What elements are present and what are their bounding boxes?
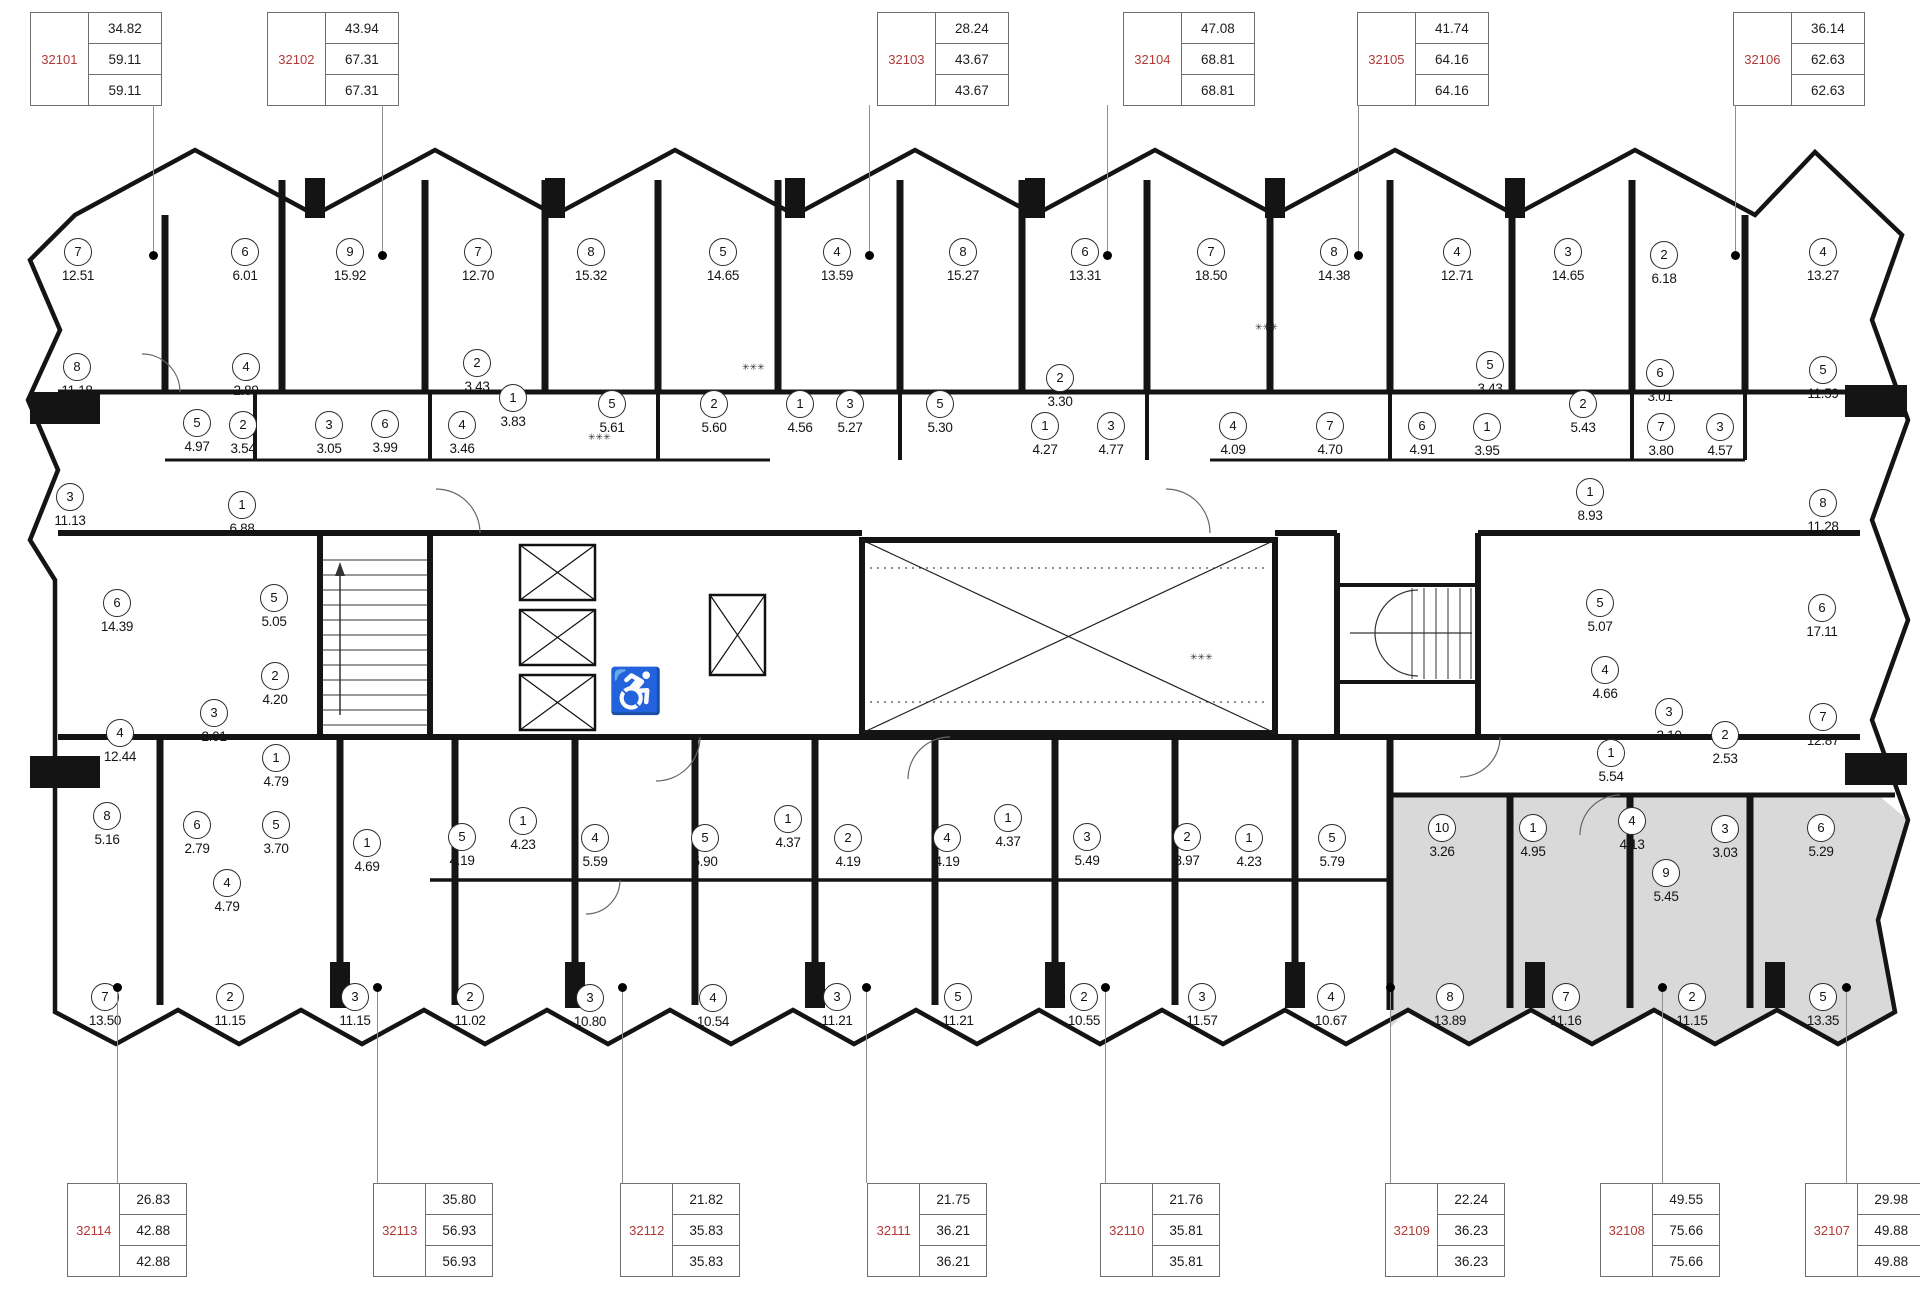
- leader-dot: [1386, 983, 1395, 992]
- unit-area-value: 21.76: [1153, 1184, 1219, 1215]
- unit-area-value: 49.55: [1653, 1184, 1719, 1215]
- unit-box: 32108 49.55 75.66 75.66: [1600, 1183, 1720, 1277]
- room-area: 4.20: [245, 692, 305, 707]
- room-area: 3.97: [1157, 853, 1217, 868]
- room-area: 4.57: [1690, 443, 1750, 458]
- room-label: 2 11.15: [1678, 983, 1706, 1028]
- room-number-circle: 5: [448, 823, 476, 851]
- leader-dot: [149, 251, 158, 260]
- room-label: 1 4.37: [994, 804, 1022, 849]
- room-label: 5 3.43: [1476, 351, 1504, 396]
- room-area: 4.09: [1203, 442, 1263, 457]
- room-label: 3 11.13: [56, 483, 84, 528]
- room-number-circle: 2: [463, 349, 491, 377]
- room-number-circle: 1: [1473, 413, 1501, 441]
- room-number-circle: 3: [823, 983, 851, 1011]
- room-number-circle: 3: [200, 699, 228, 727]
- room-number-circle: 4: [1443, 238, 1471, 266]
- room-area: 3.54: [213, 441, 273, 456]
- room-label: 3 4.57: [1706, 413, 1734, 458]
- room-label: 9 5.45: [1652, 859, 1680, 904]
- unit-box: 32105 41.74 64.16 64.16: [1357, 12, 1489, 106]
- room-area: 13.50: [75, 1013, 135, 1028]
- room-number-circle: 6: [1071, 238, 1099, 266]
- unit-area-values: 21.76 35.81 35.81: [1153, 1184, 1219, 1276]
- room-label: 3 2.01: [200, 699, 228, 744]
- room-number-circle: 6: [371, 410, 399, 438]
- room-number-circle: 2: [229, 411, 257, 439]
- room-area: 6.88: [212, 521, 272, 536]
- room-area: 5.45: [1636, 889, 1696, 904]
- room-area: 4.19: [432, 853, 492, 868]
- room-label: 6 3.99: [371, 410, 399, 455]
- unit-id: 32101: [31, 13, 89, 105]
- room-area: 12.87: [1793, 733, 1853, 748]
- unit-area-value: 67.31: [326, 75, 398, 105]
- room-area: 3.01: [1630, 389, 1690, 404]
- unit-area-value: 35.81: [1153, 1246, 1219, 1276]
- room-label: 2 3.97: [1173, 823, 1201, 868]
- room-area: 15.32: [561, 268, 621, 283]
- room-area: 4.77: [1081, 442, 1141, 457]
- room-area: 11.57: [1172, 1013, 1232, 1028]
- room-label: 8 11.28: [1809, 489, 1837, 534]
- unit-area-value: 62.63: [1792, 75, 1864, 105]
- room-label: 1 4.79: [262, 744, 290, 789]
- room-number-circle: 1: [1235, 824, 1263, 852]
- room-number-circle: 9: [336, 238, 364, 266]
- room-label: 9 15.92: [336, 238, 364, 283]
- leader-line: [869, 105, 870, 255]
- leader-dot: [1842, 983, 1851, 992]
- leader-dot: [1731, 251, 1740, 260]
- unit-area-value: 43.94: [326, 13, 398, 44]
- room-number-circle: 7: [1809, 703, 1837, 731]
- room-label: 1 4.56: [786, 390, 814, 435]
- unit-area-values: 28.24 43.67 43.67: [936, 13, 1008, 105]
- room-number-circle: 7: [1197, 238, 1225, 266]
- room-number-circle: 7: [1316, 412, 1344, 440]
- unit-area-values: 35.80 56.93 56.93: [426, 1184, 492, 1276]
- room-label: 7 18.50: [1197, 238, 1225, 283]
- unit-area-values: 29.98 49.88 49.88: [1858, 1184, 1920, 1276]
- room-label: 3 2.10: [1655, 698, 1683, 743]
- room-label: 2 5.43: [1569, 390, 1597, 435]
- room-number-circle: 3: [1554, 238, 1582, 266]
- floor-plan-sheet: ♿ ✳✳✳ ✳✳✳ ✳✳✳ ✳✳✳ 7: [0, 0, 1920, 1292]
- unit-area-value: 43.67: [936, 75, 1008, 105]
- room-number-circle: 6: [1807, 814, 1835, 842]
- unit-area-value: 36.23: [1438, 1246, 1504, 1276]
- room-label: 2 2.53: [1711, 721, 1739, 766]
- leader-line: [1107, 105, 1108, 255]
- room-label: 1 4.27: [1031, 412, 1059, 457]
- room-number-circle: 5: [183, 409, 211, 437]
- room-label: 1 4.23: [1235, 824, 1263, 869]
- room-area: 4.23: [1219, 854, 1279, 869]
- unit-area-value: 64.16: [1416, 44, 1488, 75]
- leader-dot: [378, 251, 387, 260]
- room-number-circle: 5: [1809, 356, 1837, 384]
- room-label: 5 11.59: [1809, 356, 1837, 401]
- room-number-circle: 2: [1070, 983, 1098, 1011]
- room-area: 3.43: [447, 379, 507, 394]
- unit-area-value: 62.63: [1792, 44, 1864, 75]
- room-number-circle: 3: [1706, 413, 1734, 441]
- room-label: 2 3.30: [1046, 364, 1074, 409]
- room-area: 5.79: [1302, 854, 1362, 869]
- room-number-circle: 1: [786, 390, 814, 418]
- room-number-circle: 2: [1650, 241, 1678, 269]
- room-number-circle: 4: [106, 719, 134, 747]
- room-label: 6 4.91: [1408, 412, 1436, 457]
- room-area: 3.83: [483, 414, 543, 429]
- room-label: 2 6.18: [1650, 241, 1678, 286]
- room-label: 4 5.59: [581, 824, 609, 869]
- unit-area-values: 34.82 59.11 59.11: [89, 13, 161, 105]
- room-label: 4 13.59: [823, 238, 851, 283]
- room-label: 8 5.16: [93, 802, 121, 847]
- leader-dot: [618, 983, 627, 992]
- unit-area-value: 35.83: [673, 1246, 739, 1276]
- room-area: 11.15: [325, 1013, 385, 1028]
- room-area: 11.18: [47, 383, 107, 398]
- room-label: 4 12.71: [1443, 238, 1471, 283]
- room-area: 3.30: [1030, 394, 1090, 409]
- room-label: 5 5.90: [691, 824, 719, 869]
- room-area: 4.91: [1392, 442, 1452, 457]
- room-label: 2 11.02: [456, 983, 484, 1028]
- room-number-circle: 3: [836, 390, 864, 418]
- unit-id: 32106: [1734, 13, 1792, 105]
- room-label: 2 5.60: [700, 390, 728, 435]
- room-area: 3.46: [432, 441, 492, 456]
- unit-area-value: 21.75: [920, 1184, 986, 1215]
- room-area: 11.02: [440, 1013, 500, 1028]
- room-label: 8 14.38: [1320, 238, 1348, 283]
- room-number-circle: 1: [1597, 739, 1625, 767]
- unit-area-value: 68.81: [1182, 75, 1254, 105]
- room-label: 1 3.95: [1473, 413, 1501, 458]
- leader-line: [1390, 990, 1391, 1183]
- leader-line: [1846, 990, 1847, 1183]
- room-number-circle: 2: [1046, 364, 1074, 392]
- room-number-circle: 4: [699, 984, 727, 1012]
- room-number-circle: 8: [949, 238, 977, 266]
- room-number-circle: 1: [262, 744, 290, 772]
- room-area: 6.18: [1634, 271, 1694, 286]
- room-area: 13.89: [1420, 1013, 1480, 1028]
- unit-area-value: 49.88: [1858, 1215, 1920, 1246]
- room-number-circle: 7: [1647, 413, 1675, 441]
- unit-box: 32109 22.24 36.23 36.23: [1385, 1183, 1505, 1277]
- unit-area-values: 22.24 36.23 36.23: [1438, 1184, 1504, 1276]
- room-area: 4.66: [1575, 686, 1635, 701]
- room-number-circle: 2: [834, 824, 862, 852]
- room-number-circle: 4: [933, 824, 961, 852]
- room-area: 10.67: [1301, 1013, 1361, 1028]
- room-area: 11.16: [1536, 1013, 1596, 1028]
- room-number-circle: 2: [1569, 390, 1597, 418]
- unit-id: 32114: [68, 1184, 120, 1276]
- unit-box: 32102 43.94 67.31 67.31: [267, 12, 399, 106]
- leader-line: [382, 105, 383, 255]
- room-area: 12.70: [448, 268, 508, 283]
- unit-area-value: 68.81: [1182, 44, 1254, 75]
- room-area: 12.51: [48, 268, 108, 283]
- room-number-circle: 7: [64, 238, 92, 266]
- floor-plan-svg: ♿ ✳✳✳ ✳✳✳ ✳✳✳ ✳✳✳: [0, 0, 1920, 1292]
- room-area: 11.59: [1793, 386, 1853, 401]
- leader-line: [1735, 105, 1736, 255]
- room-number-circle: 2: [456, 983, 484, 1011]
- unit-area-value: 36.23: [1438, 1215, 1504, 1246]
- room-label: 2 3.43: [463, 349, 491, 394]
- room-area: 11.21: [928, 1013, 988, 1028]
- unit-id: 32111: [868, 1184, 920, 1276]
- unit-area-value: 41.74: [1416, 13, 1488, 44]
- room-area: 5.30: [910, 420, 970, 435]
- unit-area-value: 26.83: [120, 1184, 186, 1215]
- room-number-circle: 1: [1576, 478, 1604, 506]
- room-label: 6 6.01: [231, 238, 259, 283]
- room-number-circle: 3: [576, 984, 604, 1012]
- room-label: 2 11.15: [216, 983, 244, 1028]
- room-area: 13.35: [1793, 1013, 1853, 1028]
- room-area: 3.80: [1631, 443, 1691, 458]
- unit-box: 32110 21.76 35.81 35.81: [1100, 1183, 1220, 1277]
- room-label: 3 4.77: [1097, 412, 1125, 457]
- room-number-circle: 5: [1809, 983, 1837, 1011]
- room-area: 5.54: [1581, 769, 1641, 784]
- room-label: 10 3.26: [1428, 814, 1456, 859]
- room-label: 5 5.61: [598, 390, 626, 435]
- room-label: 1 4.37: [774, 805, 802, 850]
- room-number-circle: 2: [1678, 983, 1706, 1011]
- leader-dot: [865, 251, 874, 260]
- unit-area-value: 35.83: [673, 1215, 739, 1246]
- room-label: 4 10.67: [1317, 983, 1345, 1028]
- room-label: 4 2.89: [232, 353, 260, 398]
- room-area: 4.79: [197, 899, 257, 914]
- room-label: 4 4.09: [1219, 412, 1247, 457]
- room-label: 4 12.44: [106, 719, 134, 764]
- leader-dot: [1354, 251, 1363, 260]
- leader-line: [866, 990, 867, 1183]
- room-area: 4.79: [246, 774, 306, 789]
- room-area: 11.13: [40, 513, 100, 528]
- unit-area-value: 64.16: [1416, 75, 1488, 105]
- room-number-circle: 4: [448, 411, 476, 439]
- leader-line: [1105, 990, 1106, 1183]
- room-area: 11.28: [1793, 519, 1853, 534]
- room-area: 13.27: [1793, 268, 1853, 283]
- unit-box: 32101 34.82 59.11 59.11: [30, 12, 162, 106]
- room-label: 7 12.87: [1809, 703, 1837, 748]
- room-label: 8 11.18: [63, 353, 91, 398]
- unit-area-value: 42.88: [120, 1215, 186, 1246]
- leader-line: [1358, 105, 1359, 255]
- room-number-circle: 8: [93, 802, 121, 830]
- room-area: 5.29: [1791, 844, 1851, 859]
- leader-dot: [373, 983, 382, 992]
- leader-dot: [113, 983, 122, 992]
- room-number-circle: 4: [1219, 412, 1247, 440]
- room-area: 11.15: [200, 1013, 260, 1028]
- room-label: 1 4.69: [353, 829, 381, 874]
- unit-id: 32107: [1806, 1184, 1858, 1276]
- room-area: 2.01: [184, 729, 244, 744]
- unit-area-values: 26.83 42.88 42.88: [120, 1184, 186, 1276]
- room-number-circle: 4: [823, 238, 851, 266]
- room-number-circle: 5: [926, 390, 954, 418]
- unit-box: 32113 35.80 56.93 56.93: [373, 1183, 493, 1277]
- room-number-circle: 1: [1031, 412, 1059, 440]
- room-label: 5 4.19: [448, 823, 476, 868]
- room-number-circle: 3: [1711, 815, 1739, 843]
- room-label: 6 17.11: [1808, 594, 1836, 639]
- leader-line: [622, 990, 623, 1183]
- unit-box: 32112 21.82 35.83 35.83: [620, 1183, 740, 1277]
- room-number-circle: 5: [598, 390, 626, 418]
- unit-area-value: 59.11: [89, 75, 161, 105]
- room-number-circle: 7: [1552, 983, 1580, 1011]
- room-number-circle: 5: [1318, 824, 1346, 852]
- room-label: 2 3.54: [229, 411, 257, 456]
- room-number-circle: 10: [1428, 814, 1456, 842]
- room-area: 14.65: [1538, 268, 1598, 283]
- unit-area-value: 21.82: [673, 1184, 739, 1215]
- unit-area-values: 21.82 35.83 35.83: [673, 1184, 739, 1276]
- room-number-circle: 5: [709, 238, 737, 266]
- room-number-circle: 1: [1519, 814, 1547, 842]
- room-number-circle: 5: [691, 824, 719, 852]
- room-label: 6 13.31: [1071, 238, 1099, 283]
- room-area: 11.15: [1662, 1013, 1722, 1028]
- room-label: 4 3.46: [448, 411, 476, 456]
- room-area: 4.69: [337, 859, 397, 874]
- room-number-circle: 1: [353, 829, 381, 857]
- room-area: 3.05: [299, 441, 359, 456]
- unit-area-value: 35.80: [426, 1184, 492, 1215]
- room-area: 5.60: [684, 420, 744, 435]
- room-number-circle: 4: [1591, 656, 1619, 684]
- room-number-circle: 5: [1476, 351, 1504, 379]
- room-number-circle: 3: [1188, 983, 1216, 1011]
- unit-area-values: 47.08 68.81 68.81: [1182, 13, 1254, 105]
- room-area: 5.61: [582, 420, 642, 435]
- room-number-circle: 8: [577, 238, 605, 266]
- room-area: 2.89: [216, 383, 276, 398]
- unit-id: 32113: [374, 1184, 426, 1276]
- room-label: 4 4.66: [1591, 656, 1619, 701]
- room-area: 4.70: [1300, 442, 1360, 457]
- room-label: 5 3.70: [262, 811, 290, 856]
- room-label: 3 5.49: [1073, 823, 1101, 868]
- room-label: 7 3.80: [1647, 413, 1675, 458]
- room-label: 3 5.27: [836, 390, 864, 435]
- room-number-circle: 3: [341, 983, 369, 1011]
- unit-id: 32109: [1386, 1184, 1438, 1276]
- room-label: 5 11.21: [944, 983, 972, 1028]
- room-area: 4.37: [978, 834, 1038, 849]
- room-area: 4.37: [758, 835, 818, 850]
- leader-line: [1662, 990, 1663, 1183]
- room-area: 2.10: [1639, 728, 1699, 743]
- room-number-circle: 3: [315, 411, 343, 439]
- room-label: 1 5.54: [1597, 739, 1625, 784]
- room-area: 5.90: [675, 854, 735, 869]
- room-number-circle: 4: [1317, 983, 1345, 1011]
- unit-id: 32105: [1358, 13, 1416, 105]
- room-area: 15.92: [320, 268, 380, 283]
- room-number-circle: 3: [56, 483, 84, 511]
- room-number-circle: 6: [1408, 412, 1436, 440]
- unit-area-value: 59.11: [89, 44, 161, 75]
- room-area: 13.31: [1055, 268, 1115, 283]
- unit-box: 32104 47.08 68.81 68.81: [1123, 12, 1255, 106]
- room-number-circle: 1: [228, 491, 256, 519]
- room-area: 8.93: [1560, 508, 1620, 523]
- room-area: 14.39: [87, 619, 147, 634]
- leader-line: [153, 105, 154, 255]
- room-label: 8 15.32: [577, 238, 605, 283]
- room-label: 8 15.27: [949, 238, 977, 283]
- room-label: 6 5.29: [1807, 814, 1835, 859]
- room-label: 3 14.65: [1554, 238, 1582, 283]
- room-label: 3 11.57: [1188, 983, 1216, 1028]
- room-number-circle: 6: [1808, 594, 1836, 622]
- room-number-circle: 2: [261, 662, 289, 690]
- room-number-circle: 6: [183, 811, 211, 839]
- room-number-circle: 5: [262, 811, 290, 839]
- unit-id: 32103: [878, 13, 936, 105]
- unit-area-value: 36.21: [920, 1215, 986, 1246]
- room-area: 14.65: [693, 268, 753, 283]
- unit-id: 32108: [1601, 1184, 1653, 1276]
- room-label: 6 14.39: [103, 589, 131, 634]
- room-number-circle: 6: [103, 589, 131, 617]
- room-number-circle: 1: [499, 384, 527, 412]
- unit-area-values: 36.14 62.63 62.63: [1792, 13, 1864, 105]
- unit-area-value: 28.24: [936, 13, 1008, 44]
- room-area: 3.70: [246, 841, 306, 856]
- room-label: 1 3.83: [499, 384, 527, 429]
- unit-id: 32112: [621, 1184, 673, 1276]
- room-area: 2.53: [1695, 751, 1755, 766]
- room-number-circle: 8: [63, 353, 91, 381]
- room-area: 3.43: [1460, 381, 1520, 396]
- room-label: 3 11.15: [341, 983, 369, 1028]
- room-area: 5.07: [1570, 619, 1630, 634]
- room-number-circle: 5: [944, 983, 972, 1011]
- room-number-circle: 3: [1097, 412, 1125, 440]
- room-area: 15.27: [933, 268, 993, 283]
- room-area: 12.71: [1427, 268, 1487, 283]
- room-label: 6 2.79: [183, 811, 211, 856]
- unit-box: 32107 29.98 49.88 49.88: [1805, 1183, 1920, 1277]
- room-area: 4.19: [917, 854, 977, 869]
- unit-area-value: 36.14: [1792, 13, 1864, 44]
- unit-area-value: 67.31: [326, 44, 398, 75]
- room-label: 5 5.79: [1318, 824, 1346, 869]
- room-label: 2 4.20: [261, 662, 289, 707]
- room-area: 3.26: [1412, 844, 1472, 859]
- unit-area-value: 34.82: [89, 13, 161, 44]
- room-number-circle: 8: [1809, 489, 1837, 517]
- room-number-circle: 5: [260, 584, 288, 612]
- room-label: 2 10.55: [1070, 983, 1098, 1028]
